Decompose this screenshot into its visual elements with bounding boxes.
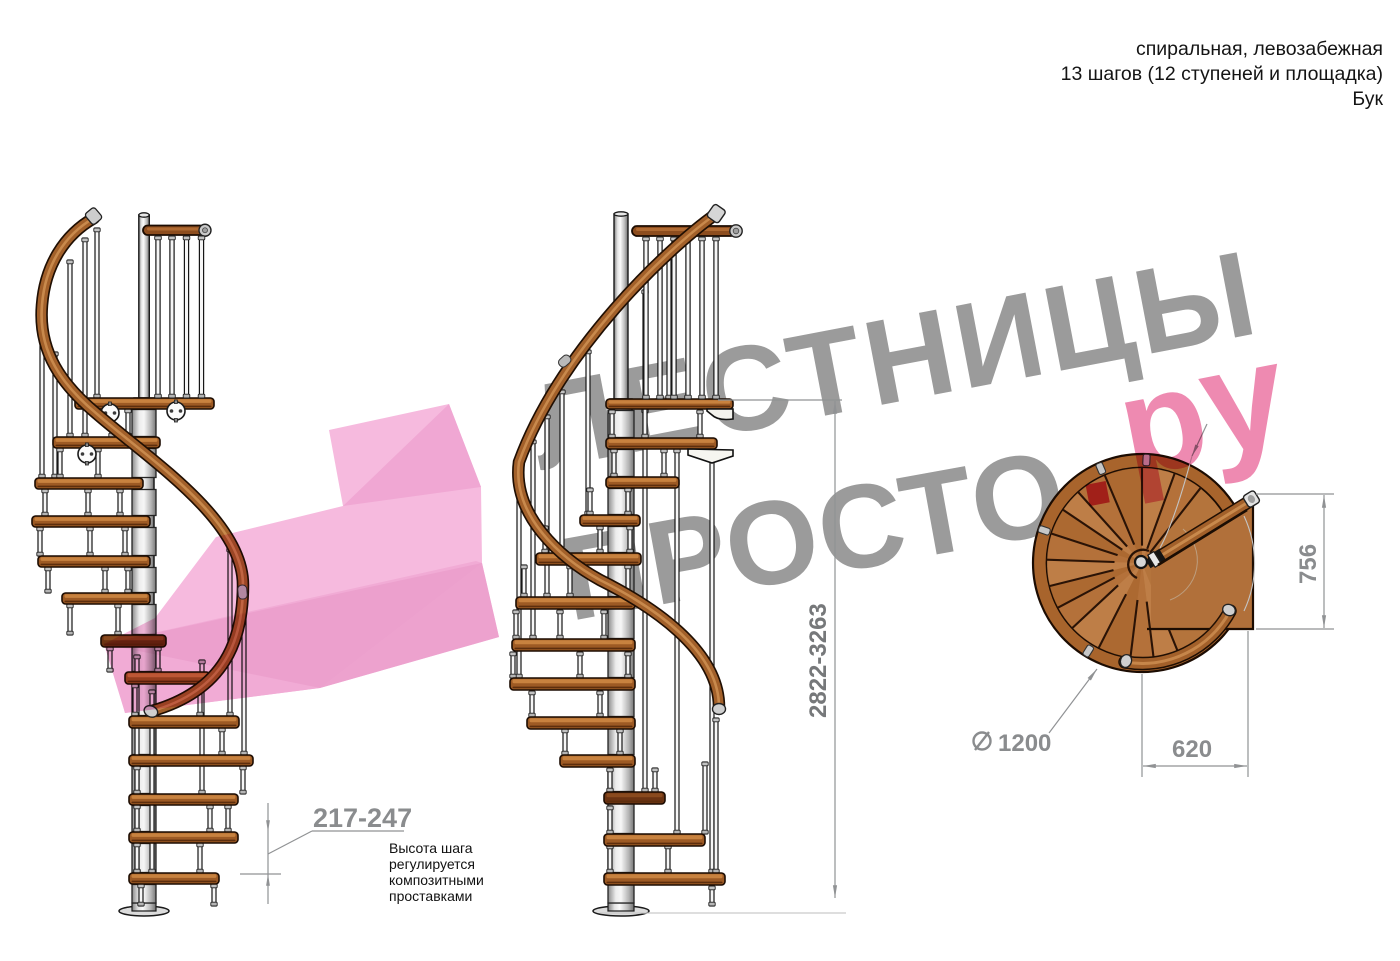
svg-text:620: 620 xyxy=(1172,736,1212,763)
svg-text:217-247: 217-247 xyxy=(313,803,412,833)
svg-text:756: 756 xyxy=(1295,544,1322,584)
svg-text:спиральная, левозабежная: спиральная, левозабежная xyxy=(1136,38,1383,60)
svg-text:2822-3263: 2822-3263 xyxy=(805,603,832,718)
svg-text:Высота шагарегулируетсякомпози: Высота шагарегулируетсякомпозитнымипрост… xyxy=(389,840,484,904)
svg-text:13 шагов (12 ступеней и площад: 13 шагов (12 ступеней и площадка) xyxy=(1061,63,1383,85)
svg-text:1200: 1200 xyxy=(998,730,1051,757)
svg-text:Бук: Бук xyxy=(1352,88,1383,110)
